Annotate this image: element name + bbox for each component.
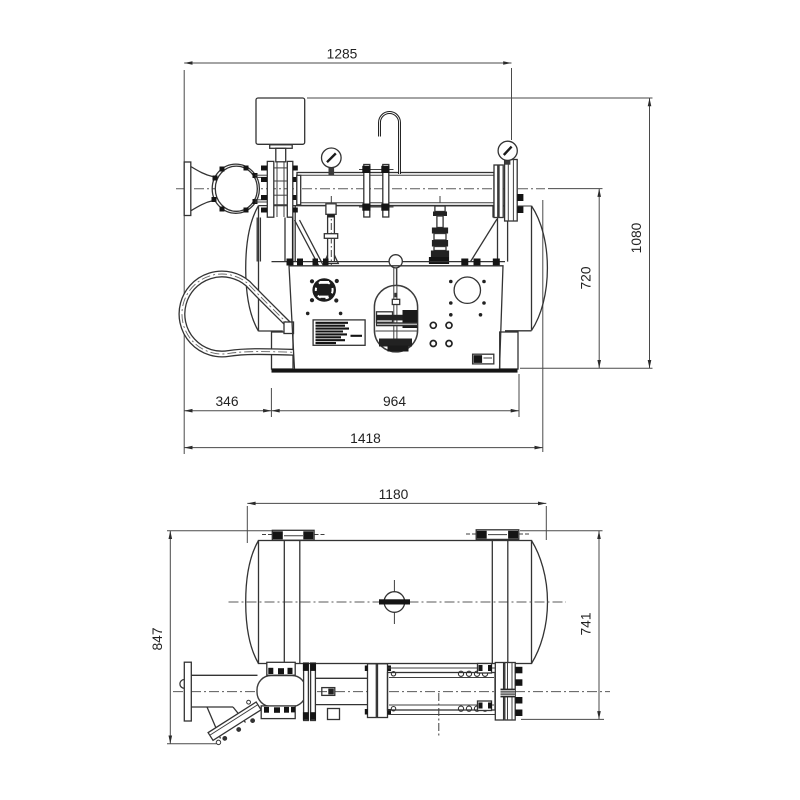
svg-text:964: 964 (383, 394, 406, 409)
svg-text:847: 847 (150, 627, 165, 650)
svg-text:346: 346 (215, 394, 238, 409)
svg-text:1285: 1285 (327, 47, 358, 62)
svg-text:720: 720 (579, 266, 594, 289)
svg-text:1180: 1180 (379, 487, 409, 502)
svg-text:1080: 1080 (629, 222, 644, 253)
svg-text:741: 741 (578, 612, 593, 635)
svg-text:1418: 1418 (350, 431, 381, 446)
